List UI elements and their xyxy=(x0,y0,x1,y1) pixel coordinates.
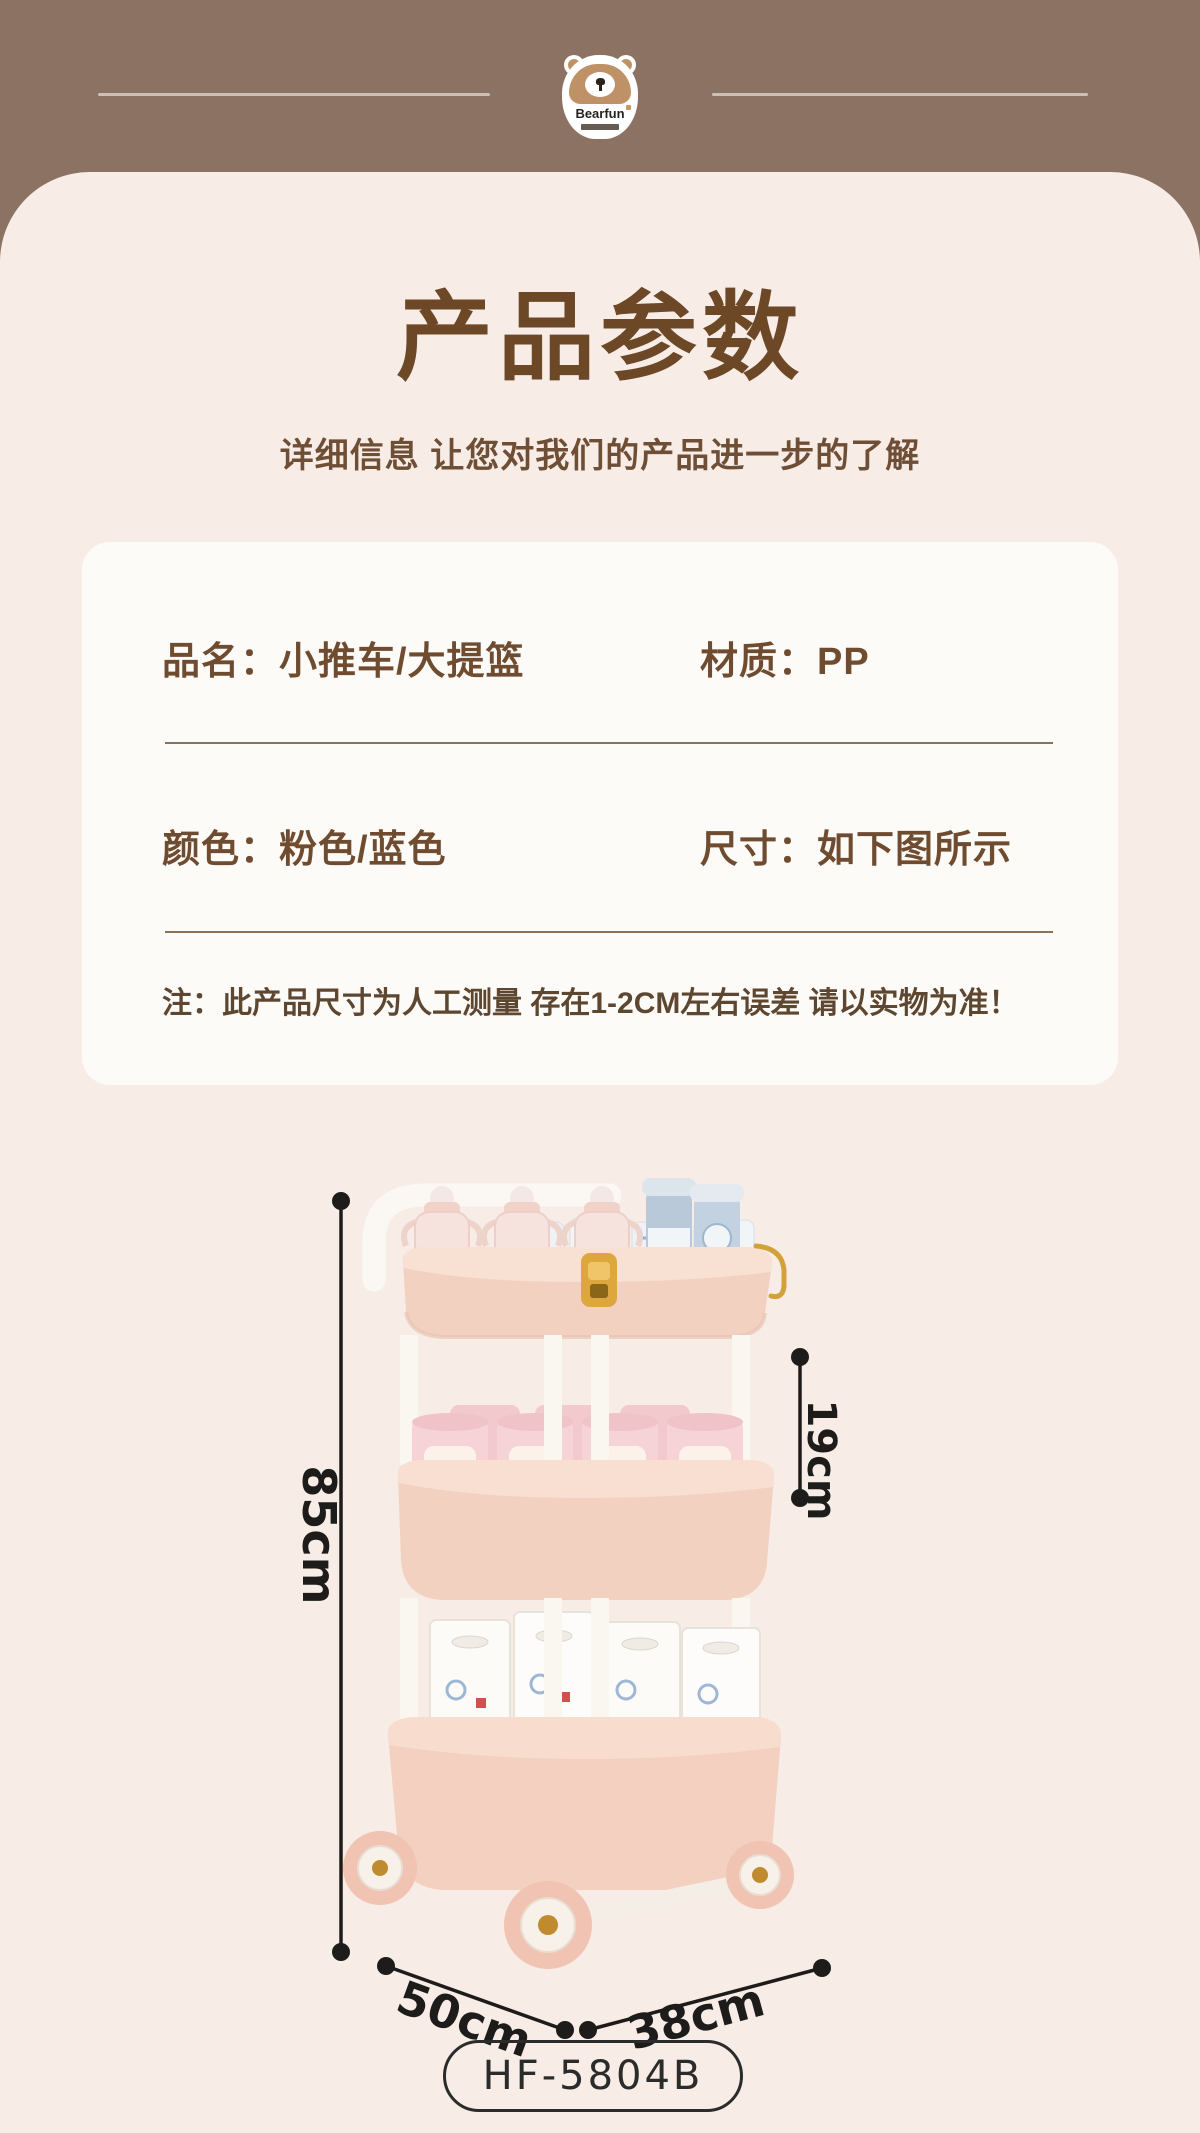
header-divider-left xyxy=(98,93,490,96)
model-number-badge: HF-5804B xyxy=(443,2040,743,2112)
cart-bottom-tray xyxy=(388,1717,781,1890)
spec-divider-2 xyxy=(165,931,1053,933)
spec-product-name: 品名：小推车/大提篮 xyxy=(162,630,525,685)
height-dimension-label: 85cm xyxy=(292,1465,346,1604)
tier-dimension-label: 19cm xyxy=(798,1399,844,1520)
gold-clasp xyxy=(581,1253,617,1307)
brand-tagline-bar xyxy=(581,124,619,130)
registered-mark-icon xyxy=(626,105,631,110)
spec-note: 注：此产品尺寸为人工测量 存在1-2CM左右误差 请以实物为准！ xyxy=(162,978,1019,1022)
cart-wheel-front xyxy=(504,1881,592,1969)
cart-wheel-right xyxy=(726,1841,794,1909)
cart-wheel-left xyxy=(343,1831,417,1905)
spec-color: 颜色：粉色/蓝色 xyxy=(162,818,447,873)
page-subtitle: 详细信息 让您对我们的产品进一步的了解 xyxy=(0,428,1200,477)
spec-divider-1 xyxy=(165,742,1053,744)
product-dimension-diagram: 85cm 19cm 50cm 38cm xyxy=(270,1150,930,2060)
page-title: 产品参数 xyxy=(0,288,1200,388)
bear-nose-stem xyxy=(599,83,602,91)
spec-card: 品名：小推车/大提篮 材质：PP 颜色：粉色/蓝色 尺寸：如下图所示 注：此产品… xyxy=(82,542,1118,1085)
spec-size: 尺寸：如下图所示 xyxy=(700,818,1012,873)
spec-material: 材质：PP xyxy=(700,630,870,685)
cart-middle-tray xyxy=(398,1460,774,1600)
header-divider-right xyxy=(712,93,1088,96)
bearfun-logo: Bearfun xyxy=(562,55,638,139)
